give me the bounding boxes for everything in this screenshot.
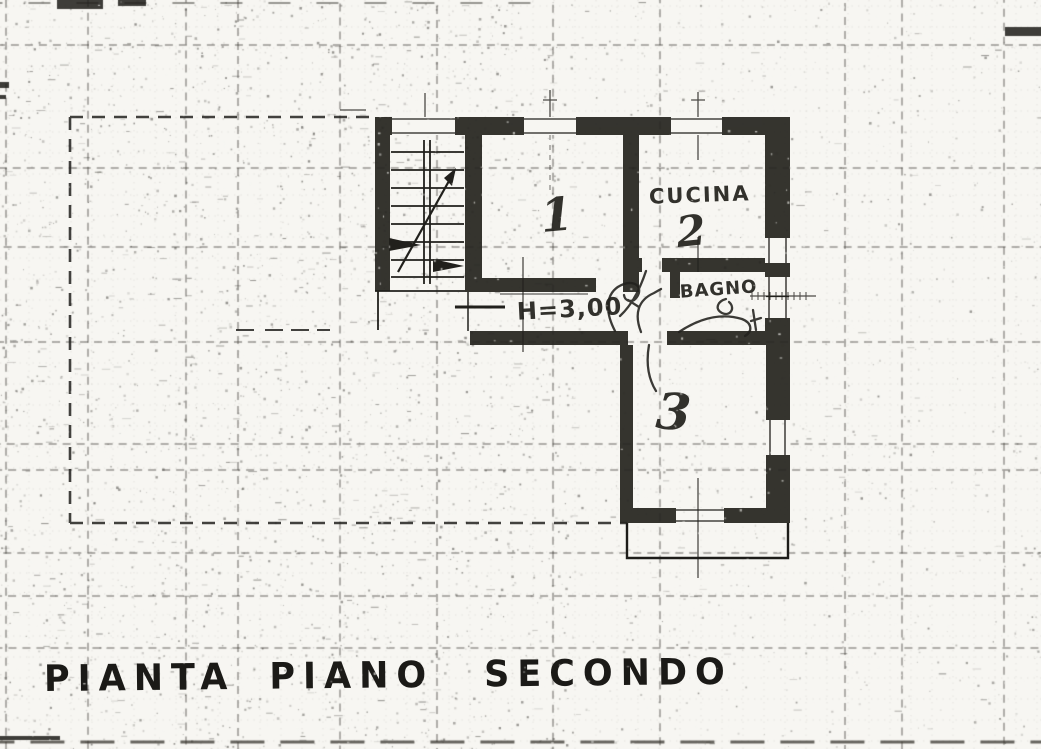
room1-number: 1 xyxy=(538,186,575,243)
ceiling-height-annotation: H=3,00 xyxy=(516,292,623,325)
bathroom-door-mark xyxy=(751,310,761,330)
plan-caption: PIANTA PIANO SECONDO xyxy=(44,652,733,701)
floor-plan-drawing: 1 CUCINA 2 BAGNO H=3,00 3 xyxy=(0,0,1041,749)
stair-direction-arrow xyxy=(398,172,454,272)
kitchen-number: 2 xyxy=(673,205,708,257)
caption-word-piano: PIANO xyxy=(269,655,434,698)
scanned-floor-plan-page: 1 CUCINA 2 BAGNO H=3,00 3 PIANTA PIANO S… xyxy=(0,0,1041,749)
room3-number: 3 xyxy=(654,381,693,442)
caption-word-pianta: PIANTA xyxy=(44,657,236,701)
caption-word-secondo: SECONDO xyxy=(484,652,733,696)
bathroom-label: BAGNO xyxy=(679,276,758,302)
balcony xyxy=(627,523,788,558)
room3-door-leaf xyxy=(648,345,656,391)
